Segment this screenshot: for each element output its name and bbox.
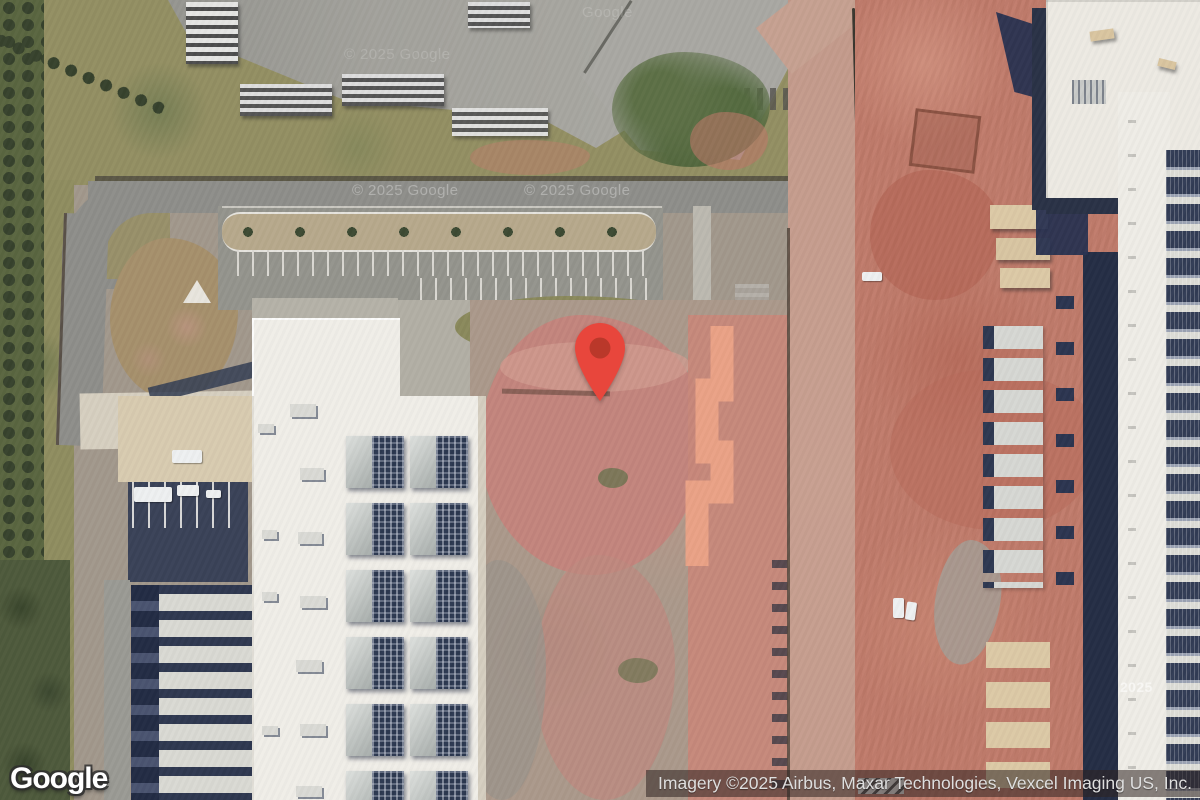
rooftop-panel-unit [410,637,468,689]
truck [177,485,199,496]
building-shadow-strip [1083,252,1120,800]
yard-road [104,580,130,800]
google-watermark: © 2025 Google [524,182,630,199]
rooftop-panel-unit [410,771,468,800]
google-watermark: Google [582,4,633,21]
generator-column [131,585,159,800]
edge-module-rows [1166,150,1200,800]
roof-vent [300,596,326,608]
truck [893,598,904,618]
roof-vent [290,404,316,417]
roof-vent [298,532,322,544]
roof-vent [262,530,277,539]
rooftop-module [1072,80,1106,104]
rooftop-panel-unit [346,570,404,622]
truck [862,272,882,281]
roof-vent [300,468,324,480]
roof-vent [262,592,277,601]
roof-vent [300,724,326,736]
rooftop-panel-unit [410,570,468,622]
mini-unit-column [1056,296,1074,586]
foundation-pad [909,108,982,174]
walk-north-of-roof [252,298,398,320]
rooftop-panel-unit [346,436,404,488]
map-canvas[interactable]: © 2025 Google © 2025 Google © 2025 Googl… [0,0,1200,800]
rooftop-panel-unit [346,503,404,555]
roof-vent [258,424,274,433]
rooftop-panel-unit [410,704,468,756]
material-pad [1000,268,1050,288]
google-logo[interactable]: Google [10,762,107,796]
map-pin[interactable] [570,318,630,402]
container [172,450,202,463]
rooftop-panel-unit [346,704,404,756]
annex-roof [118,396,252,482]
roof-vent [262,726,278,735]
map-attribution: Imagery ©2025 Airbus, Maxar Technologies… [658,773,1192,794]
datacenter-roof-wing [252,318,400,400]
pin-inner-dot [590,338,611,359]
truck [134,487,172,502]
car [206,490,221,498]
attribution-bar: Imagery ©2025 Airbus, Maxar Technologies… [646,770,1200,797]
google-watermark: © 2025 Google [352,182,458,199]
google-watermark: © 2025 Google [344,46,450,63]
rooftop-panel-unit [410,436,468,488]
construction-road [788,0,860,800]
google-watermark: 2025 [1120,679,1153,695]
roof-vent [296,786,322,797]
road-curb-line [787,228,790,800]
rooftop-panel-unit [410,503,468,555]
roof-vent [296,660,322,672]
rooftop-panel-unit [346,771,404,800]
rooftop-panel-unit [346,637,404,689]
roof-seam [478,396,486,800]
module-column-caps [983,326,994,588]
